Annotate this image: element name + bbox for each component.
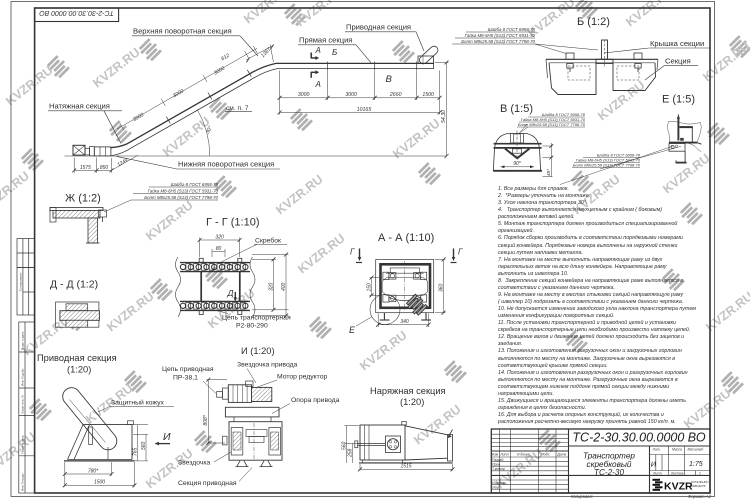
svg-text:А - А (1:10): А - А (1:10) bbox=[378, 232, 434, 244]
svg-text:Подп. и дата: Подп. и дата bbox=[20, 331, 24, 350]
svg-text:KVZR.RU: KVZR.RU bbox=[104, 289, 156, 334]
svg-text:10165: 10165 bbox=[357, 107, 372, 113]
svg-text:2660: 2660 bbox=[389, 92, 402, 98]
svg-text:Звездочка: Звездочка bbox=[178, 460, 210, 467]
svg-text:90*: 90* bbox=[513, 161, 522, 167]
svg-text:808*: 808* bbox=[203, 414, 209, 425]
svg-text:850: 850 bbox=[100, 165, 109, 171]
svg-text:Д: Д bbox=[227, 288, 234, 298]
svg-text:Г - Г (1:10): Г - Г (1:10) bbox=[206, 217, 259, 229]
svg-text:1515: 1515 bbox=[400, 464, 411, 470]
svg-text:ЗАВОД РФ: ЗАВОД РФ bbox=[691, 484, 706, 488]
svg-text:Верхняя поворотная секция: Верхняя поворотная секция bbox=[133, 27, 232, 36]
svg-text:Приводная секция: Приводная секция bbox=[346, 23, 411, 32]
svg-text:54,30: 54,30 bbox=[441, 110, 447, 123]
svg-text:1575: 1575 bbox=[80, 165, 91, 171]
svg-text:Цепь транспортерная: Цепь транспортерная bbox=[222, 315, 291, 322]
svg-text:780*: 780* bbox=[88, 468, 99, 474]
svg-text:Ж (1:2): Ж (1:2) bbox=[65, 193, 101, 205]
svg-text:(1:20): (1:20) bbox=[67, 365, 91, 375]
svg-text:Утв.: Утв. bbox=[492, 486, 500, 490]
svg-text:150: 150 bbox=[366, 283, 372, 292]
svg-text:Г: Г bbox=[350, 248, 355, 257]
svg-text:(1:20): (1:20) bbox=[400, 397, 424, 407]
svg-text:Дата: Дата bbox=[556, 452, 566, 456]
svg-text:Пров.: Пров. bbox=[492, 463, 501, 467]
svg-text:KVZR.RU: KVZR.RU bbox=[143, 198, 195, 243]
svg-text:1500: 1500 bbox=[422, 92, 434, 98]
svg-text:Инв. N дубл.: Инв. N дубл. bbox=[20, 368, 24, 386]
svg-text:612: 612 bbox=[220, 53, 231, 63]
svg-text:Разраб.: Разраб. bbox=[492, 458, 504, 462]
svg-text:3000: 3000 bbox=[298, 92, 310, 98]
svg-text:Формат А2: Формат А2 bbox=[688, 494, 712, 499]
svg-text:И: И bbox=[163, 431, 171, 443]
svg-text:Мотор редуктор: Мотор редуктор bbox=[277, 374, 327, 381]
svg-text:1: 1 bbox=[699, 472, 701, 476]
svg-text:ТС-2-30: ТС-2-30 bbox=[594, 468, 624, 477]
svg-text:Р2-80-290: Р2-80-290 bbox=[236, 323, 268, 330]
svg-text:И: И bbox=[651, 460, 657, 469]
svg-text:45*: 45* bbox=[546, 169, 551, 176]
svg-text:Звездочка привода: Звездочка привода bbox=[237, 362, 298, 369]
svg-text:Взам. инв. N: Взам. инв. N bbox=[20, 395, 24, 413]
svg-text:3000: 3000 bbox=[345, 92, 357, 98]
svg-text:Скребок: Скребок bbox=[255, 237, 281, 245]
svg-text:Т.контр: Т.контр bbox=[492, 467, 505, 471]
svg-text:765: 765 bbox=[132, 447, 138, 456]
svg-text:В: В bbox=[386, 74, 393, 85]
svg-text:ZR.RU: ZR.RU bbox=[0, 169, 32, 204]
svg-text:ТС-2-30.30.00.0000 ВО: ТС-2-30.30.00.0000 ВО bbox=[39, 9, 114, 16]
svg-text:Болт М8х25.58 (S13) ГОСТ 7798-: Болт М8х25.58 (S13) ГОСТ 7798-70 bbox=[144, 195, 218, 200]
svg-text:KVZR.RU: KVZR.RU bbox=[295, 231, 347, 276]
svg-text:Секция: Секция bbox=[665, 57, 691, 66]
svg-text:Наряжная секция: Наряжная секция bbox=[370, 386, 446, 396]
svg-text:VZR.RU: VZR.RU bbox=[0, 430, 39, 470]
svg-text:Листов: Листов bbox=[670, 472, 684, 476]
svg-text:Шайба 8 ГОСТ 6958-78: Шайба 8 ГОСТ 6958-78 bbox=[488, 27, 536, 32]
svg-text:Масштаб: Масштаб bbox=[688, 448, 704, 452]
svg-text:Лист: Лист bbox=[499, 452, 509, 456]
svg-text:400: 400 bbox=[281, 282, 287, 291]
svg-text:KVZR.RU: KVZR.RU bbox=[595, 78, 647, 123]
svg-text:KVZR: KVZR bbox=[664, 481, 693, 493]
svg-text:340: 340 bbox=[400, 319, 409, 325]
svg-text:Нижняя поворотная секция: Нижняя поворотная секция bbox=[178, 160, 274, 169]
svg-text:А: А bbox=[315, 46, 321, 55]
svg-text:Подп. и дата: Подп. и дата bbox=[20, 435, 24, 454]
svg-text:Д - Д (1:2): Д - Д (1:2) bbox=[50, 279, 98, 291]
svg-text:KVZR.RU: KVZR.RU bbox=[390, 116, 442, 161]
svg-text:Б (1:2): Б (1:2) bbox=[577, 16, 610, 28]
svg-text:И (1:20): И (1:20) bbox=[241, 346, 275, 356]
svg-text:KVZR.RU: KVZR.RU bbox=[700, 39, 750, 84]
svg-text:см. п. 7: см. п. 7 bbox=[226, 105, 249, 112]
svg-text:Лист: Лист bbox=[652, 472, 662, 476]
svg-text:Цепь приводная: Цепь приводная bbox=[162, 366, 214, 373]
svg-text:Н.контр: Н.контр bbox=[492, 481, 506, 485]
svg-text:Г: Г bbox=[458, 248, 463, 257]
svg-text:360: 360 bbox=[438, 283, 444, 292]
svg-text:Гайка М8-6Н5 (S13) ГОСТ 5931-7: Гайка М8-6Н5 (S13) ГОСТ 5931-70 bbox=[148, 189, 219, 194]
svg-text:Лит.: Лит. bbox=[652, 448, 661, 452]
svg-text:Инв. N подл.: Инв. N подл. bbox=[20, 473, 24, 491]
svg-text:Гайка М8-6Н5 (S13) ГОСТ 5931-7: Гайка М8-6Н5 (S13) ГОСТ 5931-70 bbox=[465, 33, 536, 38]
svg-text:KVZR.RU: KVZR.RU bbox=[90, 45, 142, 90]
svg-text:Подп.: Подп. bbox=[541, 452, 550, 456]
svg-text:N докум.: N докум. bbox=[517, 452, 531, 456]
svg-text:Натяжная секция: Натяжная секция bbox=[49, 102, 110, 111]
svg-text:KVZR.RU: KVZR.RU bbox=[273, 172, 325, 217]
svg-text:Болт М8х25.58 (S13) ГОСТ 7798-: Болт М8х25.58 (S13) ГОСТ 7798-70 bbox=[518, 122, 586, 127]
svg-text:Б: Б bbox=[332, 48, 337, 57]
svg-text:KVZR.RU: KVZR.RU bbox=[357, 328, 409, 373]
svg-text:Крышка секции: Крышка секции bbox=[650, 39, 704, 48]
svg-text:1:75: 1:75 bbox=[689, 461, 703, 468]
svg-text:Е: Е bbox=[349, 325, 356, 335]
svg-text:А: А bbox=[315, 80, 321, 89]
svg-text:Опора привода: Опора привода bbox=[291, 397, 340, 404]
svg-text:Защитный кожух: Защитный кожух bbox=[111, 399, 164, 407]
svg-text:Согласовано: Согласовано bbox=[18, 272, 22, 291]
svg-text:KVZR.RU: KVZR.RU bbox=[411, 402, 463, 447]
svg-text:Болт М8х25.58 (S13) ГОСТ 7798-: Болт М8х25.58 (S13) ГОСТ 7798-70 bbox=[461, 39, 535, 44]
svg-text:ПР-38,1: ПР-38,1 bbox=[173, 375, 198, 382]
svg-text:ТС-2-30.30.00.0000 ВО: ТС-2-30.30.00.0000 ВО bbox=[572, 431, 705, 445]
svg-text:Копировал:: Копировал: bbox=[571, 494, 593, 499]
svg-text:KVZR.RU: KVZR.RU bbox=[293, 0, 345, 29]
svg-text:Секция приводная: Секция приводная bbox=[178, 480, 237, 487]
svg-text:В (1:5): В (1:5) bbox=[500, 103, 533, 115]
svg-text:KVZR.RU: KVZR.RU bbox=[623, 0, 675, 29]
svg-text:320: 320 bbox=[215, 234, 224, 240]
svg-text:Изм: Изм bbox=[492, 452, 499, 456]
svg-text:1500: 1500 bbox=[94, 480, 105, 486]
svg-text:Приводная секция: Приводная секция bbox=[37, 353, 117, 363]
svg-text:258: 258 bbox=[347, 448, 353, 458]
svg-text:80: 80 bbox=[216, 246, 222, 252]
svg-text:Шайба 8 ГОСТ 6958-78: Шайба 8 ГОСТ 6958-78 bbox=[171, 182, 219, 187]
svg-text:Масса: Масса bbox=[672, 448, 682, 452]
svg-text:Прямая секция: Прямая секция bbox=[299, 36, 352, 45]
svg-text:560: 560 bbox=[141, 441, 147, 450]
svg-text:Болт М8х25.58 (S13) ГОСТ 7798-: Болт М8х25.58 (S13) ГОСТ 7798-70 bbox=[573, 163, 641, 168]
svg-text:320: 320 bbox=[268, 282, 274, 291]
svg-text:Е (1:5): Е (1:5) bbox=[662, 94, 695, 106]
svg-text:3000: 3000 bbox=[172, 88, 185, 99]
